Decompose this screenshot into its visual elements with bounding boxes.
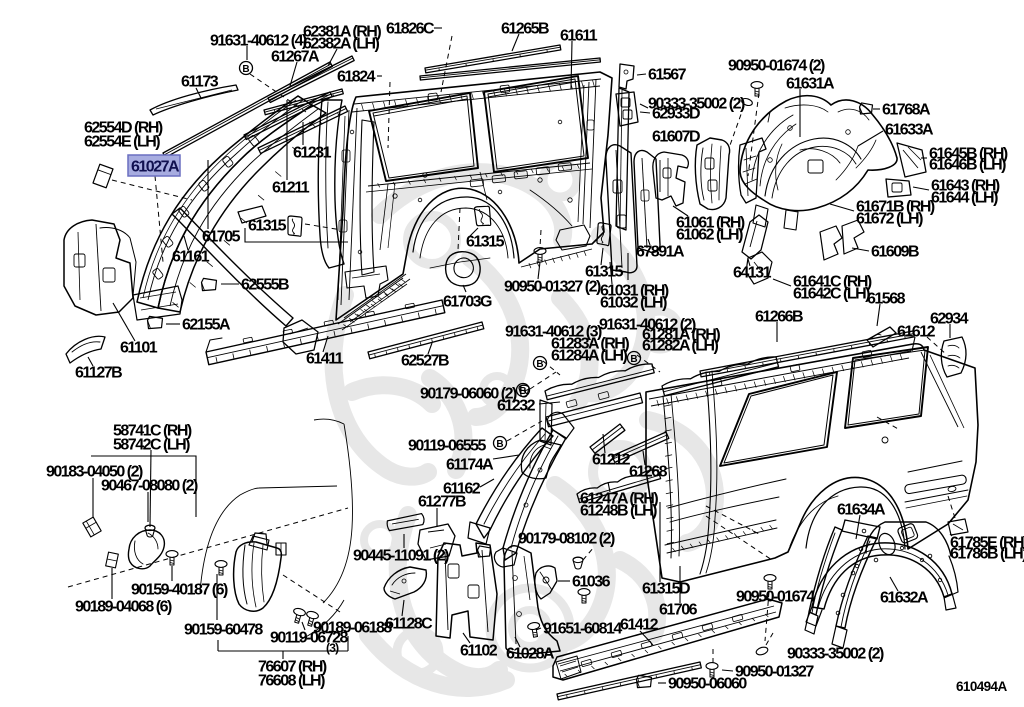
svg-text:62934: 62934 xyxy=(930,311,969,328)
svg-text:61277B: 61277B xyxy=(418,494,466,511)
svg-text:62933D: 62933D xyxy=(652,106,700,123)
svg-text:61284A (LH): 61284A (LH) xyxy=(551,348,628,365)
svg-text:61634A: 61634A xyxy=(837,502,886,519)
svg-text:90950-01674: 90950-01674 xyxy=(736,589,815,606)
svg-text:61028A: 61028A xyxy=(506,646,555,663)
svg-text:90950-01674 (2): 90950-01674 (2) xyxy=(728,58,825,75)
svg-text:67891A: 67891A xyxy=(636,244,685,261)
svg-text:61036: 61036 xyxy=(572,574,611,591)
svg-text:61315: 61315 xyxy=(248,218,287,235)
svg-text:(3): (3) xyxy=(326,641,339,655)
svg-text:61174A: 61174A xyxy=(446,457,494,474)
svg-text:61786B (LH): 61786B (LH) xyxy=(950,546,1024,563)
svg-text:61211: 61211 xyxy=(272,180,310,197)
svg-text:61265B: 61265B xyxy=(501,21,549,38)
svg-text:B: B xyxy=(519,386,526,397)
svg-text:61173: 61173 xyxy=(181,74,219,91)
svg-text:61315D: 61315D xyxy=(642,581,690,598)
svg-text:61703G: 61703G xyxy=(443,294,492,311)
svg-text:61266B: 61266B xyxy=(755,309,803,326)
svg-text:61268: 61268 xyxy=(629,464,668,481)
svg-text:90950-06060: 90950-06060 xyxy=(668,676,747,693)
svg-text:62527B: 62527B xyxy=(401,353,449,370)
svg-text:90159-60478: 90159-60478 xyxy=(184,622,263,639)
svg-text:62554E (LH): 62554E (LH) xyxy=(84,134,160,151)
svg-text:61128C: 61128C xyxy=(385,616,433,633)
svg-text:61212: 61212 xyxy=(592,452,631,469)
svg-text:61027A: 61027A xyxy=(131,159,180,176)
svg-text:91651-60814: 91651-60814 xyxy=(543,621,622,638)
svg-text:B: B xyxy=(242,64,249,75)
svg-text:90179-08102 (2): 90179-08102 (2) xyxy=(518,531,615,548)
svg-text:62155A: 62155A xyxy=(182,317,231,334)
svg-text:61232: 61232 xyxy=(497,398,536,415)
svg-text:90950-01327: 90950-01327 xyxy=(735,664,814,681)
svg-text:61826C: 61826C xyxy=(386,21,435,38)
svg-text:61824: 61824 xyxy=(337,69,376,86)
svg-text:61062 (LH): 61062 (LH) xyxy=(676,227,743,244)
svg-text:61706: 61706 xyxy=(659,602,698,619)
svg-text:61705: 61705 xyxy=(202,229,241,246)
svg-text:B: B xyxy=(630,354,637,365)
svg-text:61631A: 61631A xyxy=(786,76,835,93)
svg-text:61411: 61411 xyxy=(306,351,344,368)
svg-text:64131: 64131 xyxy=(733,265,772,282)
svg-text:B: B xyxy=(536,359,543,370)
svg-text:61161: 61161 xyxy=(172,249,210,266)
svg-text:61127B: 61127B xyxy=(75,365,122,382)
svg-text:76608 (LH): 76608 (LH) xyxy=(258,673,325,690)
svg-text:61032 (LH): 61032 (LH) xyxy=(600,295,667,312)
svg-text:61231: 61231 xyxy=(293,145,332,162)
svg-text:90159-40187 (6): 90159-40187 (6) xyxy=(131,582,228,599)
svg-text:61607D: 61607D xyxy=(652,129,700,146)
svg-text:61611: 61611 xyxy=(560,28,598,45)
svg-text:61632A: 61632A xyxy=(880,590,929,607)
svg-text:62555B: 62555B xyxy=(241,277,289,294)
svg-text:90445-11091 (2): 90445-11091 (2) xyxy=(353,548,449,565)
svg-text:61567: 61567 xyxy=(648,67,687,84)
svg-text:90950-01327 (2): 90950-01327 (2) xyxy=(504,279,601,296)
svg-text:61672 (LH): 61672 (LH) xyxy=(856,211,923,228)
svg-text:91631-40612 (4): 91631-40612 (4) xyxy=(210,33,307,50)
svg-text:B: B xyxy=(496,439,503,450)
svg-text:61612: 61612 xyxy=(897,324,936,341)
svg-text:90333-35002 (2): 90333-35002 (2) xyxy=(787,646,884,663)
svg-text:61642C (LH): 61642C (LH) xyxy=(793,286,870,303)
svg-text:61644 (LH): 61644 (LH) xyxy=(931,190,998,207)
svg-text:61248B (LH): 61248B (LH) xyxy=(580,503,657,520)
svg-text:90189-04068 (6): 90189-04068 (6) xyxy=(75,599,172,616)
svg-text:61568: 61568 xyxy=(867,291,906,308)
svg-text:61646B (LH): 61646B (LH) xyxy=(929,157,1006,174)
svg-text:61633A: 61633A xyxy=(885,122,934,139)
svg-text:61282A (LH): 61282A (LH) xyxy=(642,338,719,355)
svg-text:58742C (LH): 58742C (LH) xyxy=(113,437,190,454)
svg-text:61768A: 61768A xyxy=(882,102,931,119)
svg-text:61412: 61412 xyxy=(620,617,659,634)
svg-text:61102: 61102 xyxy=(460,643,498,660)
svg-text:61101: 61101 xyxy=(120,340,158,357)
svg-text:61315: 61315 xyxy=(466,234,505,251)
svg-text:610494A: 610494A xyxy=(956,679,1007,694)
svg-text:61609B: 61609B xyxy=(871,244,919,261)
svg-text:90467-08080 (2): 90467-08080 (2) xyxy=(101,478,198,495)
svg-text:90119-06555: 90119-06555 xyxy=(408,438,487,455)
svg-text:61267A: 61267A xyxy=(271,49,320,66)
